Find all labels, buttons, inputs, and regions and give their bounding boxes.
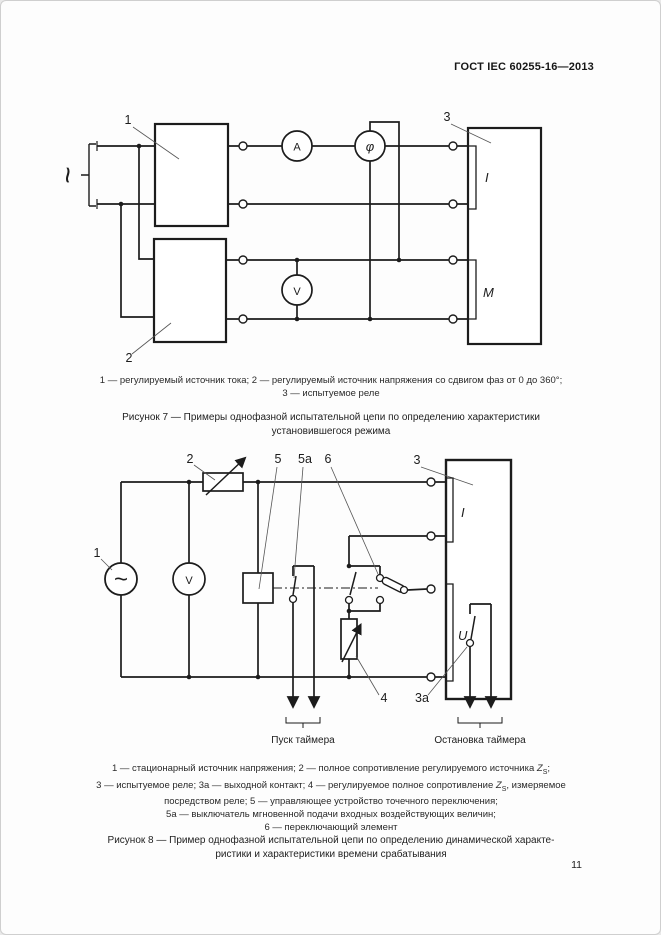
switch-5a-blade bbox=[293, 576, 296, 595]
label-6: 6 bbox=[325, 452, 332, 466]
timer-stop-bracket bbox=[458, 717, 502, 723]
bottom-rail bbox=[121, 595, 446, 677]
switch-5a-hinge bbox=[290, 596, 297, 603]
voltage-source-block bbox=[154, 239, 226, 342]
label-4: 4 bbox=[381, 691, 388, 705]
junction-dot bbox=[119, 202, 124, 207]
label-3: 3 bbox=[414, 453, 421, 467]
relay-block bbox=[468, 128, 541, 344]
terminal bbox=[427, 585, 435, 593]
terminal bbox=[449, 142, 457, 150]
label-2: 2 bbox=[126, 351, 133, 365]
terminal bbox=[449, 256, 457, 264]
junction-dot bbox=[295, 317, 300, 322]
lower-contact bbox=[377, 597, 384, 604]
figure7-diagram: ~ 1 A φ bbox=[51, 110, 541, 365]
ammeter-letter: A bbox=[293, 142, 301, 154]
current-bracket-label: I bbox=[485, 170, 489, 185]
input-wires bbox=[97, 146, 155, 204]
label-5: 5 bbox=[275, 452, 282, 466]
terminal bbox=[449, 315, 457, 323]
junction-dot bbox=[187, 675, 192, 680]
figure7-title-line1: Рисунок 7 — Примеры однофазной испытател… bbox=[41, 411, 621, 425]
junction-dot bbox=[347, 675, 352, 680]
junction-dot bbox=[256, 675, 261, 680]
figure7-caption-line1: 1 — регулируемый источник тока; 2 — регу… bbox=[41, 375, 621, 388]
timer-start-wires bbox=[293, 566, 314, 702]
voltmeter-letter: V bbox=[185, 575, 193, 587]
junction-dot bbox=[256, 480, 261, 485]
terminal bbox=[427, 532, 435, 540]
figure8-title: Рисунок 8 — Пример однофазной испытатель… bbox=[41, 834, 621, 862]
figure8-caption-line1: 1 — стационарный источник напряжения; 2 … bbox=[41, 763, 621, 780]
ac-source-symbol: ~ bbox=[51, 141, 97, 209]
figure8-caption-line3: посредством реле; 5 — управляющее устрой… bbox=[41, 796, 621, 809]
junction-dot bbox=[347, 564, 352, 569]
current-source-block bbox=[155, 124, 228, 226]
junction-dot bbox=[295, 258, 300, 263]
document-page: ГОСТ IEC 60255-16—2013 ~ 1 bbox=[0, 0, 661, 935]
label-1: 1 bbox=[94, 546, 101, 560]
m-bracket-label: M bbox=[483, 285, 494, 300]
terminal bbox=[239, 256, 247, 264]
leader-5a bbox=[294, 467, 303, 578]
label-3: 3 bbox=[444, 110, 451, 124]
terminal bbox=[239, 142, 247, 150]
figure7-caption-line2: 3 — испытуемое реле bbox=[41, 388, 621, 401]
figure8-caption: 1 — стационарный источник напряжения; 2 … bbox=[41, 763, 621, 835]
figure8-caption-line2: 3 — испытуемое реле; 3а — выходной конта… bbox=[41, 780, 621, 797]
phase-meter-letter: φ bbox=[366, 139, 375, 154]
leader-5 bbox=[259, 467, 277, 589]
label-2: 2 bbox=[187, 452, 194, 466]
voltmeter-letter: V bbox=[293, 286, 301, 298]
output-contact-hinge bbox=[467, 640, 474, 647]
figure8-caption-line4: 5а — выключатель мгновенной подачи входн… bbox=[41, 809, 621, 822]
leader-4 bbox=[356, 656, 379, 695]
label-1: 1 bbox=[125, 113, 132, 127]
lower-contact bbox=[346, 597, 353, 604]
terminal bbox=[239, 200, 247, 208]
timer-stop-label: Остановка таймера bbox=[434, 735, 526, 746]
timer-start-label: Пуск таймера bbox=[271, 735, 335, 746]
label-3a: 3а bbox=[415, 691, 429, 705]
page-number: 11 bbox=[571, 859, 582, 871]
terminal bbox=[427, 673, 435, 681]
ac-tilde: ~ bbox=[51, 166, 84, 184]
junction-dot bbox=[137, 144, 142, 149]
label-5a: 5а bbox=[298, 452, 312, 466]
changeover-out-wire bbox=[408, 589, 428, 590]
figure8-title-line2: ристики и характеристики времени срабаты… bbox=[41, 848, 621, 862]
figure8-caption-line5: 6 — переключающий элемент bbox=[41, 822, 621, 835]
figure8-title-line1: Рисунок 8 — Пример однофазной испытатель… bbox=[41, 834, 621, 848]
junction-dot bbox=[187, 480, 192, 485]
relay-block bbox=[446, 460, 511, 699]
figure7-title-line2: установившегося режима bbox=[41, 425, 621, 439]
figure7-caption: 1 — регулируемый источник тока; 2 — регу… bbox=[41, 375, 621, 401]
control-device bbox=[243, 573, 273, 603]
terminal bbox=[449, 200, 457, 208]
feed-wires bbox=[121, 146, 154, 317]
adj-impedance bbox=[341, 619, 357, 659]
terminal bbox=[427, 478, 435, 486]
timer-start-bracket bbox=[286, 717, 320, 723]
voltage-bracket-label: U bbox=[458, 628, 468, 643]
terminal bbox=[239, 315, 247, 323]
contact-loop bbox=[349, 604, 380, 611]
figure8-diagram: ~ 1 2 V 5 5 bbox=[94, 452, 527, 746]
lower-switch-blade bbox=[350, 572, 356, 595]
top-rail bbox=[121, 482, 446, 563]
ac-source-tilde: ~ bbox=[114, 566, 128, 593]
current-bracket-label: I bbox=[461, 505, 465, 520]
figure7-title: Рисунок 7 — Примеры однофазной испытател… bbox=[41, 411, 621, 439]
leader-1 bbox=[101, 559, 112, 570]
leader-6 bbox=[331, 467, 378, 574]
changeover-contact bbox=[401, 587, 408, 594]
